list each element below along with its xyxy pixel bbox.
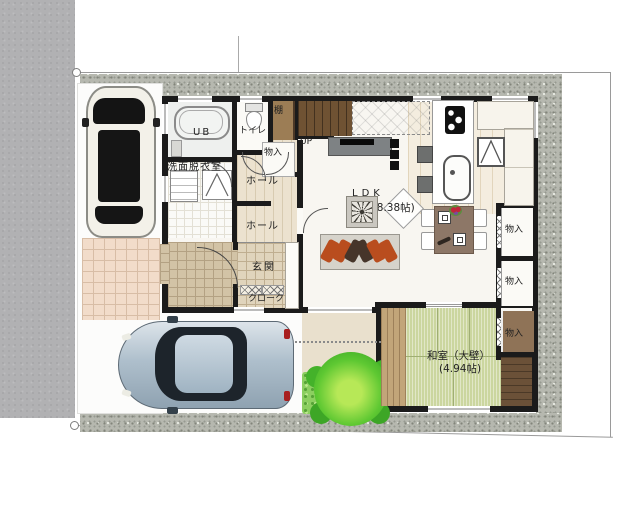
wall-hall-east-upper <box>297 140 303 208</box>
washitsu-label: 和室（大壁） <box>427 351 490 362</box>
ub-label: UB <box>193 128 211 138</box>
place-mat-inner <box>457 237 463 243</box>
window-south-washitsu <box>428 406 490 412</box>
washitsu-area-label: (4.94帖) <box>439 364 481 375</box>
floor-plan-canvas: LDK (18.38帖) UB トイレ 棚 UP 物入 ホール 洗面脱衣室 ホー… <box>0 0 640 512</box>
table-flowers <box>449 205 462 216</box>
entrance-label: 玄関 <box>252 263 276 273</box>
site-boundary-right <box>610 72 611 437</box>
sports-car-headlight <box>121 333 132 342</box>
window-north-ub <box>178 96 212 102</box>
dimension-line <box>238 36 239 72</box>
storage-washitsu-label: 物入 <box>505 330 523 339</box>
place-mat-inner <box>442 215 448 221</box>
minivan-mirror <box>82 118 89 127</box>
kitchen-sink <box>443 155 471 201</box>
adjacent-lot-block <box>0 0 75 418</box>
shelf-label: 棚 <box>274 107 283 116</box>
washing-machine <box>170 170 198 202</box>
window-south-living <box>308 307 372 313</box>
boundary-marker-circle <box>70 421 79 430</box>
refrigerator <box>477 137 505 167</box>
minivan-mirror <box>153 118 160 127</box>
counter-stool <box>417 146 433 163</box>
toilet-label: トイレ <box>239 127 266 136</box>
hall-upper-label: ホール <box>246 177 279 187</box>
closet-door-marks <box>497 318 501 346</box>
up-label: UP <box>300 138 312 147</box>
wall-hall-divider <box>237 201 271 206</box>
dining-chair <box>472 232 487 250</box>
counter-stool <box>417 176 433 193</box>
staircase <box>298 101 352 136</box>
ceiling-light-icon <box>346 196 378 228</box>
tree-icon <box>314 352 388 426</box>
ceiling-light-rays <box>351 201 373 223</box>
speaker-box <box>390 139 399 148</box>
storage-right-upper-label: 物入 <box>505 226 523 235</box>
kitchen-cabinet-east <box>504 128 534 206</box>
cloak-label: クローク <box>248 295 284 304</box>
sports-car-taillight <box>284 391 290 401</box>
washitsu-wood-strip <box>381 308 406 406</box>
sports-car-roof-glass <box>175 335 233 393</box>
minivan-roof <box>98 130 140 202</box>
sports-car-mirror <box>167 407 178 414</box>
washroom-label: 洗面脱衣室 <box>167 163 222 173</box>
approach-tiles <box>82 238 160 320</box>
porch-opening <box>160 244 170 284</box>
washitsu-sliding-door <box>426 302 462 308</box>
minivan-rear-window <box>95 206 143 224</box>
window-south-cloak <box>234 307 264 313</box>
place-mat <box>453 233 466 246</box>
speaker-box <box>390 150 399 159</box>
closet-door-marks <box>497 268 501 298</box>
window-west-washroom <box>162 176 168 202</box>
window-west-ub <box>162 104 168 134</box>
concrete-band-right <box>536 74 562 432</box>
minivan-windshield <box>93 98 145 124</box>
sports-car-taillight <box>284 329 290 339</box>
closet-door-marks <box>497 216 501 248</box>
hall-lower-label: ホール <box>246 222 279 232</box>
stair-open-above <box>352 101 430 135</box>
storage-stair-label: 物入 <box>264 149 282 158</box>
kitchen-counter-north <box>477 101 534 130</box>
sink-faucet <box>450 170 455 175</box>
washitsu-side-board <box>501 357 532 406</box>
sports-car <box>118 321 294 409</box>
wall-washroom-hall <box>232 157 237 242</box>
minivan-car <box>86 86 156 238</box>
tv-screen <box>340 139 374 145</box>
cooktop <box>445 106 465 134</box>
sports-car-mirror <box>167 316 178 323</box>
shoe-cabinet <box>285 242 299 309</box>
refrigerator-symbol-icon <box>479 139 503 165</box>
dining-chair <box>472 209 487 227</box>
wall-genkan-porch-top <box>233 242 238 250</box>
bath-counter <box>171 140 182 157</box>
speaker-box <box>390 161 399 170</box>
storage-right-middle-label: 物入 <box>505 278 523 287</box>
window-north-toilet <box>240 96 262 102</box>
site-boundary-top <box>76 72 610 73</box>
wall-closet-div3 <box>496 352 538 357</box>
